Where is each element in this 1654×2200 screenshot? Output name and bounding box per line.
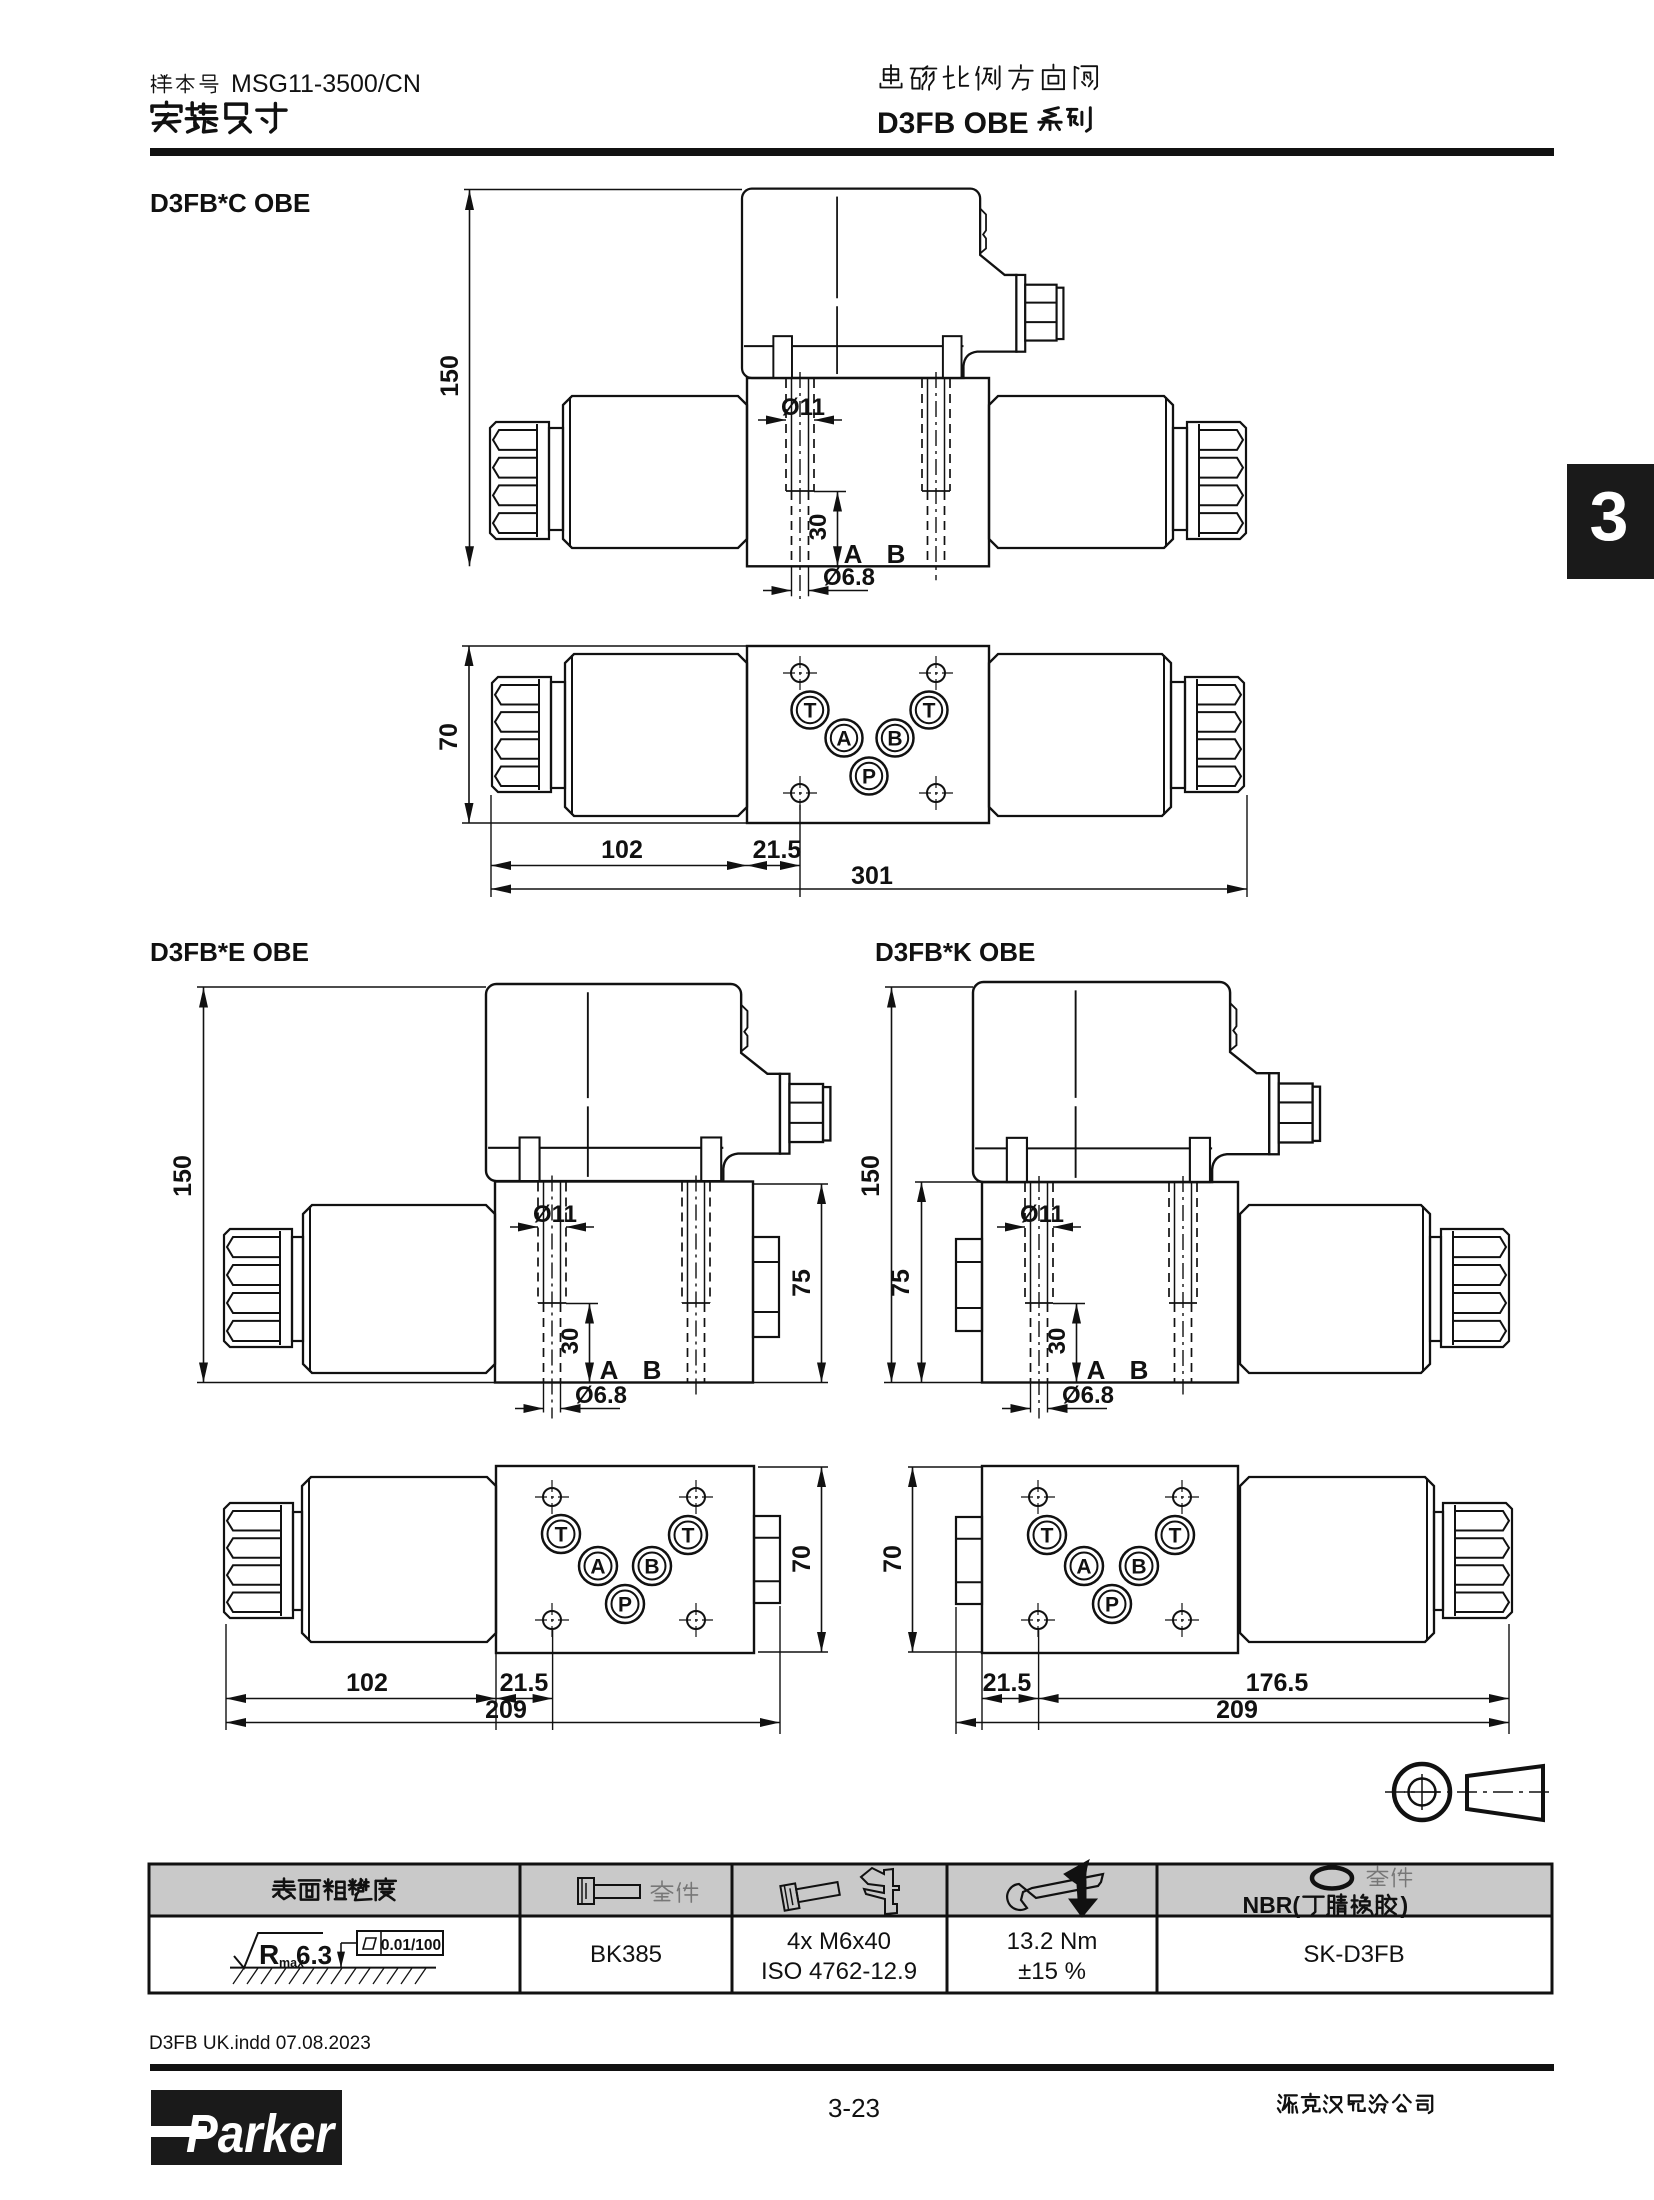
svg-text:B: B <box>887 728 902 751</box>
svg-text:T: T <box>804 700 817 723</box>
svg-text:70: 70 <box>788 1545 816 1573</box>
svg-text:0.01/100: 0.01/100 <box>381 1937 441 1954</box>
svg-text:102: 102 <box>601 836 643 864</box>
svg-text:NBR(: NBR( <box>1243 1892 1301 1918</box>
svg-text:D3FB*E OBE: D3FB*E OBE <box>150 937 309 967</box>
svg-text:75: 75 <box>788 1269 816 1297</box>
svg-text:B: B <box>887 539 906 569</box>
svg-text:30: 30 <box>805 514 832 541</box>
svg-text:75: 75 <box>887 1269 915 1297</box>
svg-text:T: T <box>682 1525 695 1548</box>
svg-text:30: 30 <box>1044 1328 1071 1355</box>
svg-text:70: 70 <box>879 1545 907 1573</box>
svg-text:D3FB UK.indd 07.08.2023: D3FB UK.indd 07.08.2023 <box>149 2033 371 2054</box>
svg-text:21.5: 21.5 <box>753 836 802 864</box>
svg-text:T: T <box>555 1524 568 1547</box>
svg-text:B: B <box>644 1556 659 1579</box>
svg-text:Ø6.8: Ø6.8 <box>823 564 875 591</box>
svg-text:ISO 4762-12.9: ISO 4762-12.9 <box>761 1958 917 1985</box>
svg-text:102: 102 <box>346 1669 388 1697</box>
svg-text:B: B <box>1130 1355 1149 1385</box>
svg-text:T: T <box>1041 1525 1054 1548</box>
svg-text:A: A <box>1076 1556 1091 1579</box>
svg-text:Parker: Parker <box>186 2104 337 2164</box>
svg-text:D3FB*K OBE: D3FB*K OBE <box>875 937 1035 967</box>
svg-text:T: T <box>923 700 936 723</box>
svg-text:Ø11: Ø11 <box>533 1201 577 1228</box>
svg-text:P: P <box>1105 1594 1119 1617</box>
svg-text:A: A <box>836 728 851 751</box>
svg-text:Ø6.8: Ø6.8 <box>575 1382 627 1409</box>
svg-text:21.5: 21.5 <box>500 1669 549 1697</box>
svg-text:150: 150 <box>436 355 464 397</box>
svg-text:D3FB OBE: D3FB OBE <box>877 107 1029 140</box>
svg-text:D3FB*C OBE: D3FB*C OBE <box>150 188 310 218</box>
svg-text:301: 301 <box>851 862 893 890</box>
svg-text:176.5: 176.5 <box>1246 1669 1309 1697</box>
svg-text:Ø6.8: Ø6.8 <box>1062 1382 1114 1409</box>
svg-text:3-23: 3-23 <box>828 2093 880 2123</box>
svg-text:Ø11: Ø11 <box>781 394 825 421</box>
svg-text:21.5: 21.5 <box>983 1669 1032 1697</box>
svg-text:P: P <box>618 1594 632 1617</box>
svg-text:B: B <box>643 1355 662 1385</box>
svg-text:P: P <box>862 766 876 789</box>
svg-text:): ) <box>1401 1892 1409 1918</box>
svg-text:209: 209 <box>1216 1696 1258 1724</box>
svg-text:70: 70 <box>435 723 463 751</box>
svg-text:R: R <box>259 1939 279 1970</box>
svg-text:A: A <box>600 1355 619 1385</box>
svg-text:SK-D3FB: SK-D3FB <box>1303 1941 1404 1968</box>
svg-text:150: 150 <box>857 1155 885 1197</box>
svg-text:A: A <box>1087 1355 1106 1385</box>
svg-text:A: A <box>590 1556 605 1579</box>
svg-text:209: 209 <box>485 1696 527 1724</box>
svg-text:BK385: BK385 <box>590 1941 662 1968</box>
svg-text:Ø11: Ø11 <box>1020 1201 1064 1228</box>
svg-text:13.2 Nm: 13.2 Nm <box>1007 1928 1098 1955</box>
svg-text:4x M6x40: 4x M6x40 <box>787 1928 891 1955</box>
svg-text:B: B <box>1131 1556 1146 1579</box>
svg-text:±15 %: ±15 % <box>1018 1958 1086 1985</box>
svg-text:150: 150 <box>169 1155 197 1197</box>
svg-text:30: 30 <box>557 1328 584 1355</box>
svg-text:3: 3 <box>1590 477 1629 555</box>
svg-text:6.3: 6.3 <box>296 1940 332 1970</box>
svg-text:MSG11-3500/CN: MSG11-3500/CN <box>231 70 421 98</box>
svg-text:T: T <box>1169 1525 1182 1548</box>
